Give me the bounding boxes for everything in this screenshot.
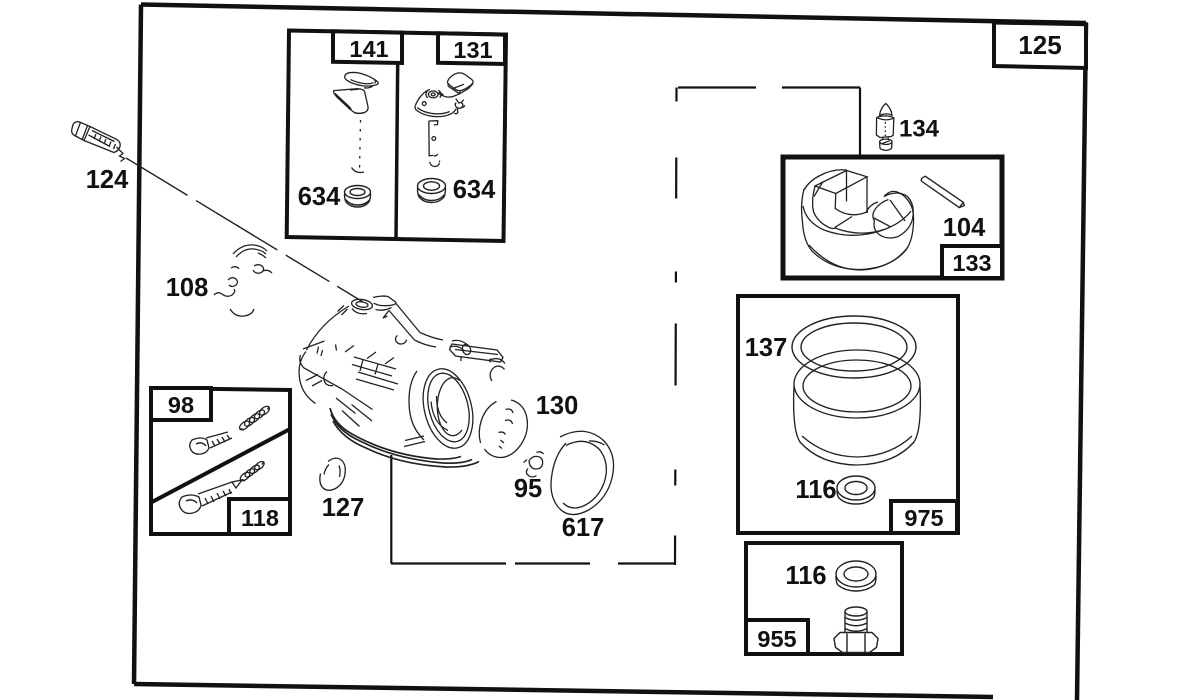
svg-text:141: 141	[349, 36, 388, 62]
svg-text:104: 104	[943, 214, 986, 242]
svg-text:98: 98	[168, 392, 194, 418]
svg-text:116: 116	[785, 562, 826, 590]
svg-text:118: 118	[241, 505, 279, 531]
svg-text:134: 134	[899, 116, 940, 143]
svg-text:116: 116	[795, 476, 836, 504]
svg-text:131: 131	[453, 37, 492, 63]
svg-text:124: 124	[86, 166, 129, 194]
svg-text:127: 127	[322, 494, 365, 522]
svg-text:137: 137	[745, 334, 788, 362]
svg-text:108: 108	[166, 274, 209, 302]
svg-text:955: 955	[757, 626, 796, 652]
svg-text:975: 975	[904, 505, 943, 531]
svg-text:130: 130	[536, 392, 579, 420]
svg-text:617: 617	[562, 514, 605, 542]
svg-text:95: 95	[514, 475, 542, 503]
svg-text:634: 634	[453, 176, 496, 204]
svg-text:125: 125	[1018, 30, 1061, 60]
svg-text:634: 634	[298, 183, 341, 211]
svg-text:133: 133	[952, 250, 991, 276]
